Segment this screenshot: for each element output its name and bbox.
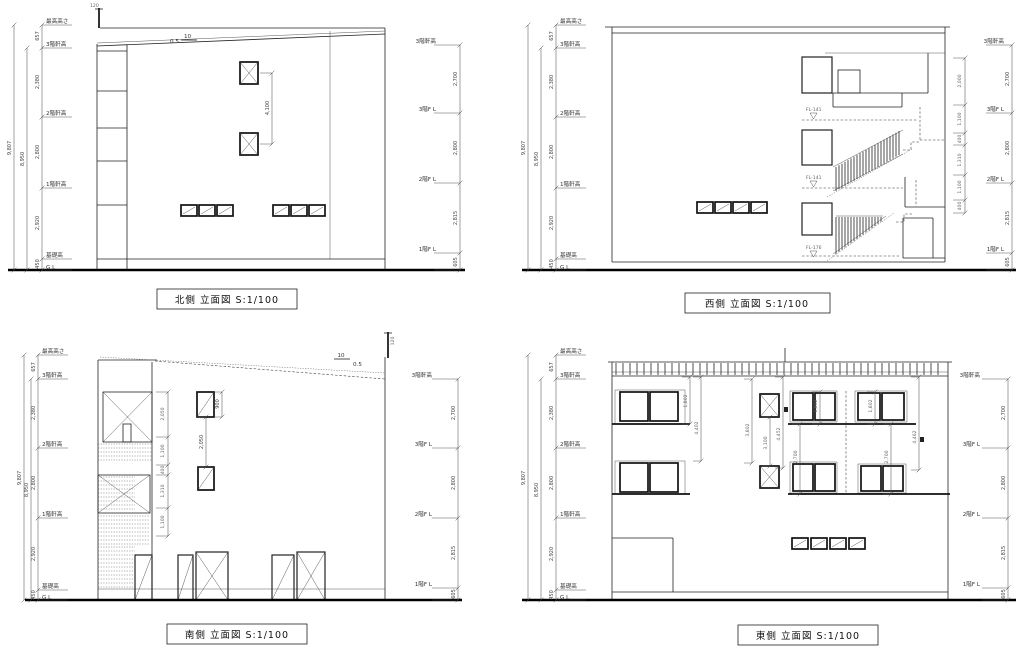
level-label: 3階軒高 [560,40,581,48]
east-dimension-labels: 1,802 4,402 3,802 3,100 4,452 1,802 1,80… [683,394,924,463]
level-label: 2階軒高 [42,440,63,448]
level-label: 1階軒高 [46,180,67,188]
level-label: 最高高さ [560,347,582,355]
dim-segment: 2,800 [451,476,457,490]
dim-segment: 4,462 [912,430,918,443]
level-label: 3階軒高 [960,371,981,379]
dim-segment: 2,800 [1001,476,1007,490]
west-right-dimension-chain: 3階軒高 3階F L 2階F L 1階F L 2,700 2,800 2,815… [984,37,1011,267]
level-triangle-icon [810,181,817,187]
dim-segment: 2,815 [451,546,457,560]
drawing-title: 南側 立面図 S:1/100 [185,629,289,641]
generated-vent-openings [181,202,865,549]
vent-slash [794,540,806,547]
west-title-box: 西側 立面図 S:1/100 [685,293,830,313]
south-building-outline [98,332,392,600]
south-slope-run: 10 [337,353,345,359]
dim-segment: 605 [451,589,457,599]
east-title-box: 東側 立面図 S:1/100 [738,625,878,645]
dim-total: 9,807 [7,141,13,155]
dim-segment: 657 [31,362,37,372]
dim-segment: 400 [957,202,963,211]
dim-segment: 2,920 [549,547,555,561]
dim-segment: 2,800 [453,141,459,155]
level-label: 基礎高 [42,582,59,590]
dim-segment: 657 [35,31,41,41]
south-stair-dimension-chain: 2,050 1,100 400 1,310 1,100 [160,407,166,528]
dim-segment: 4,402 [694,421,700,434]
dim-segment: 2,700 [453,72,459,86]
dim-total: 9,807 [521,141,527,155]
dim-segment: 1,100 [160,444,166,457]
dim-segment: 2,700 [1005,72,1011,86]
dim-segment: 657 [549,31,555,41]
level-label: 1階F L [415,580,433,588]
dim-segment: 2,380 [549,406,555,420]
south-elevation-panel: 120 10 0.5 900 2 [17,332,462,644]
vent-slash [219,207,231,214]
cad-canvas: 120 0.5 10 4,100 9,807 8,950 657 2,380 2… [0,0,1024,656]
north-right-dimension-chain: 3階軒高 3階F L 2階F L 1階F L 2,700 2,800 2,815… [416,37,459,267]
dim-total: 9,807 [17,471,23,485]
level-label: 最高高さ [42,347,64,355]
vent-slash [832,540,844,547]
generated-stair-hatching [98,131,899,587]
north-left-dimension-chain: 9,807 8,950 657 2,380 2,800 2,920 450 最高… [7,17,68,271]
dim-segment: 1,802 [813,399,819,412]
south-window-height-dim: 900 [215,399,221,409]
generated-railing-slats [616,363,938,375]
dim-segment: 605 [1001,589,1007,599]
vent-slash [851,540,863,547]
level-label: 1階軒高 [560,180,581,188]
north-slope-rise: 0.5 [170,39,179,45]
dim-segment: 2,800 [1005,141,1011,155]
east-elevation-panel: 1,802 4,402 3,802 3,100 4,452 1,802 1,80… [521,347,1016,645]
dim-segment: 2,815 [1005,211,1011,225]
dim-total: 8,950 [24,483,30,497]
west-stair-windows [802,57,832,235]
dim-segment: 1,100 [957,112,963,125]
west-left-dimension-chain: 9,807 8,950 657 2,380 2,800 2,920 450 最高… [521,17,582,271]
vent-slash [275,207,287,214]
dim-segment: 1,100 [160,515,166,528]
south-title-box: 南側 立面図 S:1/100 [167,624,307,644]
vent-slash [201,207,213,214]
drawing-title: 東側 立面図 S:1/100 [756,630,860,642]
dim-segment: 2,800 [31,476,37,490]
west-building-outline [605,27,950,262]
vent-slash [311,207,323,214]
dim-segment: 3,100 [763,436,769,449]
drawing-title: 西側 立面図 S:1/100 [705,298,809,310]
north-slope-run: 10 [184,34,192,40]
annotation-mark [920,437,924,442]
level-label: 3階軒高 [46,40,67,48]
south-stair-shaft [98,392,152,600]
north-window-dim: 4,100 [265,101,271,115]
level-label: 1階軒高 [42,510,63,518]
level-label: 1階F L [987,245,1005,253]
dim-segment: 2,800 [549,476,555,490]
vent-slash [293,207,305,214]
south-entry-doors [178,552,325,600]
fl-marker-label: FL-176 [806,245,822,251]
level-label: 1階軒高 [560,510,581,518]
fl-marker-label: FL-141 [806,107,822,113]
east-2f-windows [612,391,950,494]
dim-segment: 4,452 [776,427,782,440]
level-label: 2階軒高 [46,109,67,117]
level-label: 基礎高 [560,582,577,590]
level-label: 3階F L [987,105,1005,113]
east-left-dimension-chain: 9,807 8,950 657 2,380 2,800 2,920 450 最高… [521,347,582,601]
dim-segment: 2,000 [957,74,963,87]
dim-total: 9,807 [521,471,527,485]
dim-segment: 2,920 [31,547,37,561]
level-label: 3階軒高 [42,371,63,379]
level-label: 最高高さ [560,17,582,25]
vent-slash [699,204,711,211]
level-label: 3階軒高 [416,37,437,45]
east-right-dimension-chain: 3階軒高 3階F L 2階F L 1階F L 2,700 2,800 2,815… [960,371,1007,599]
level-label: 3階F L [963,440,981,448]
level-label: 3階F L [415,440,433,448]
dim-segment: 2,380 [35,75,41,89]
dim-segment: 605 [453,257,459,267]
level-label: 3階軒高 [560,371,581,379]
dim-segment: 2,920 [35,216,41,230]
level-label: 3階軒高 [412,371,433,379]
north-title-box: 北側 立面図 S:1/100 [157,289,297,309]
south-window-gap-dim: 2,050 [199,435,205,449]
vent-slash [735,204,747,211]
level-label: 基礎高 [46,251,63,259]
south-antenna-dim: 120 [390,337,396,346]
dim-total: 8,950 [20,152,26,166]
dim-segment: 2,700 [1001,406,1007,420]
drawing-title: 北側 立面図 S:1/100 [175,294,279,306]
dim-segment: 400 [957,135,963,144]
fl-marker-label: FL-141 [806,175,822,181]
level-label: 最高高さ [46,17,68,25]
level-label: 2階F L [419,175,437,183]
north-fixed-windows [240,62,258,155]
elevation-drawing-sheet: 120 0.5 10 4,100 9,807 8,950 657 2,380 2… [0,0,1024,656]
dim-segment: 2,800 [35,145,41,159]
dim-segment: 2,700 [793,450,799,463]
dim-segment: 657 [549,362,555,372]
dim-total: 8,950 [534,483,540,497]
dim-segment: 400 [160,466,166,475]
vent-slash [813,540,825,547]
level-label: 基礎高 [560,251,577,259]
west-opening-dimension-chain: 2,000 1,100 400 1,310 1,100 400 [957,74,963,210]
level-label: 2階軒高 [560,109,581,117]
vent-slash [183,207,195,214]
dim-segment: 2,920 [549,216,555,230]
dim-segment: 1,802 [868,399,874,412]
dim-segment: 2,380 [31,406,37,420]
dim-total: 8,950 [534,152,540,166]
east-building-outline [608,348,952,600]
dim-segment: 2,700 [451,406,457,420]
west-elevation-panel: FL-141 FL-141 FL-176 9,807 8,950 657 2,3… [521,17,1016,313]
dim-segment: 605 [1005,257,1011,267]
level-label: 1階F L [963,580,981,588]
annotation-mark [784,407,788,412]
level-label: 3階F L [419,105,437,113]
dim-segment: 1,802 [683,394,689,407]
level-label: 3階軒高 [984,37,1005,45]
north-elevation-panel: 120 0.5 10 4,100 9,807 8,950 657 2,380 2… [7,3,465,309]
vent-slash [717,204,729,211]
dim-segment: 1,310 [957,153,963,166]
dim-segment: 2,380 [549,75,555,89]
south-right-dimension-chain: 3階軒高 3階F L 2階F L 1階F L 2,700 2,800 2,815… [412,371,457,599]
level-label: 1階F L [419,245,437,253]
level-label: 2階F L [963,510,981,518]
north-antenna-dim: 120 [90,3,99,9]
level-label: 2階F L [987,175,1005,183]
south-slope-rise: 0.5 [353,362,362,368]
dim-segment: 2,800 [549,145,555,159]
dim-segment: 2,815 [1001,546,1007,560]
level-triangle-icon [810,113,817,119]
vent-slash [753,204,765,211]
dim-segment: 1,100 [957,180,963,193]
level-label: 2階F L [415,510,433,518]
dim-segment: 3,802 [745,423,751,436]
dim-segment: 2,050 [160,407,166,420]
dim-segment: 1,310 [160,484,166,497]
dim-segment: 2,700 [884,450,890,463]
dim-segment: 2,815 [453,211,459,225]
level-label: 2階軒高 [560,440,581,448]
